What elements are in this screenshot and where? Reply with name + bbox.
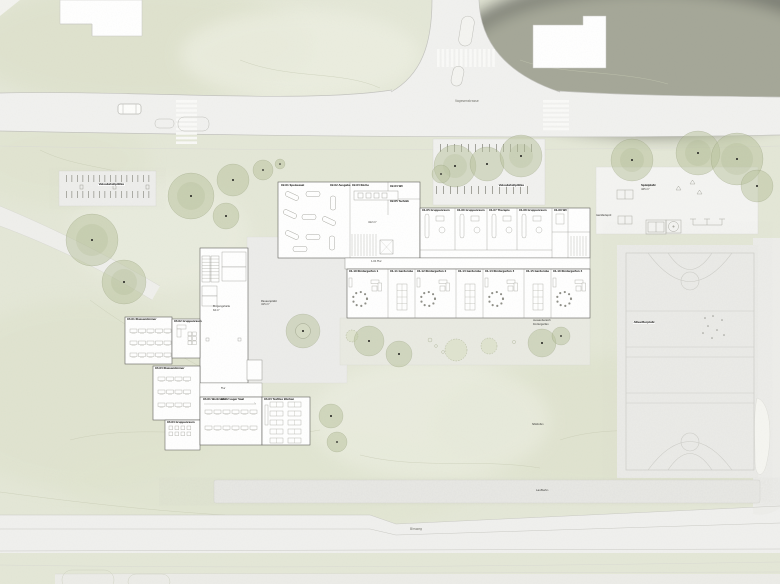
site-plan: Vogesenstrasse Birsweg Laufbahn Allwette… [0, 0, 780, 584]
paper-texture-overlay [0, 0, 780, 584]
site-plan-svg [0, 0, 780, 584]
